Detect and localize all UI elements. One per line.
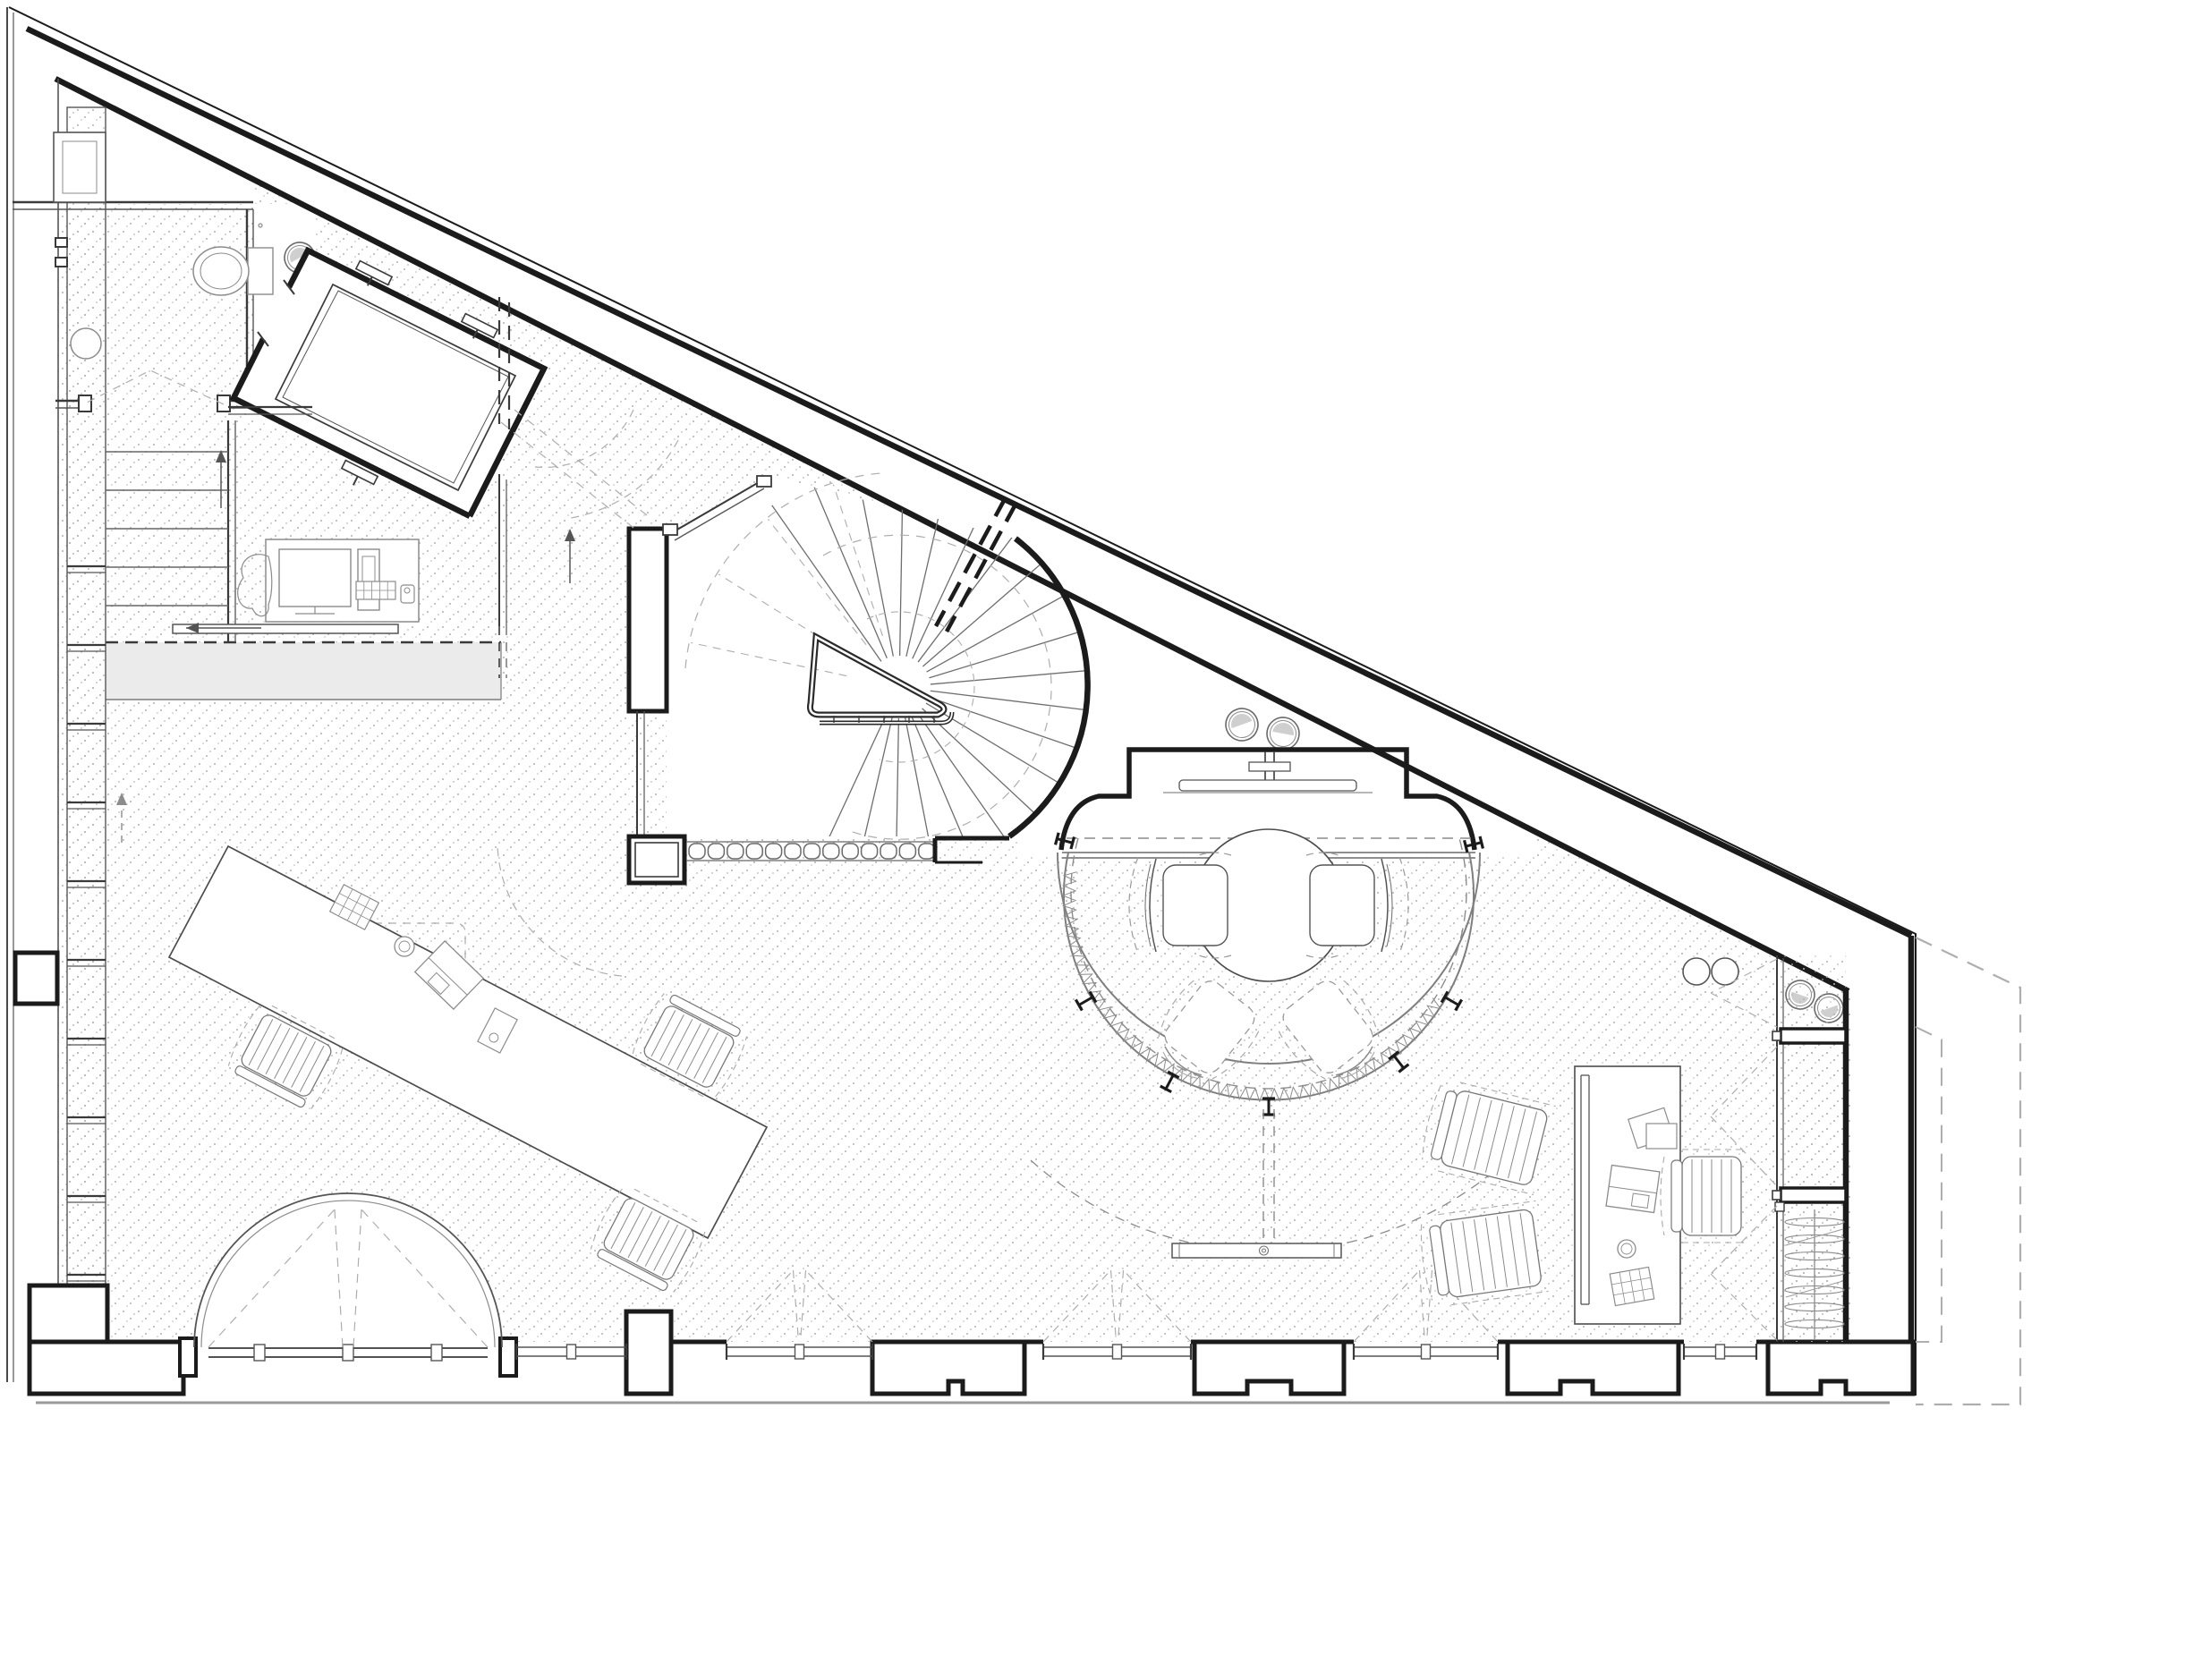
low-bench: [1172, 1243, 1341, 1258]
keyboard: [356, 581, 395, 599]
floor-plan-canvas: [0, 0, 2193, 1680]
keypad: [1610, 1267, 1654, 1305]
laptop: [1606, 1165, 1660, 1212]
floor-plan-page: [0, 0, 2193, 1680]
toilet: [193, 247, 273, 295]
striped-chair: [1661, 1150, 1747, 1243]
mezzanine-band: [106, 642, 501, 700]
neighbor-outline-dashed: [1916, 938, 2020, 1404]
